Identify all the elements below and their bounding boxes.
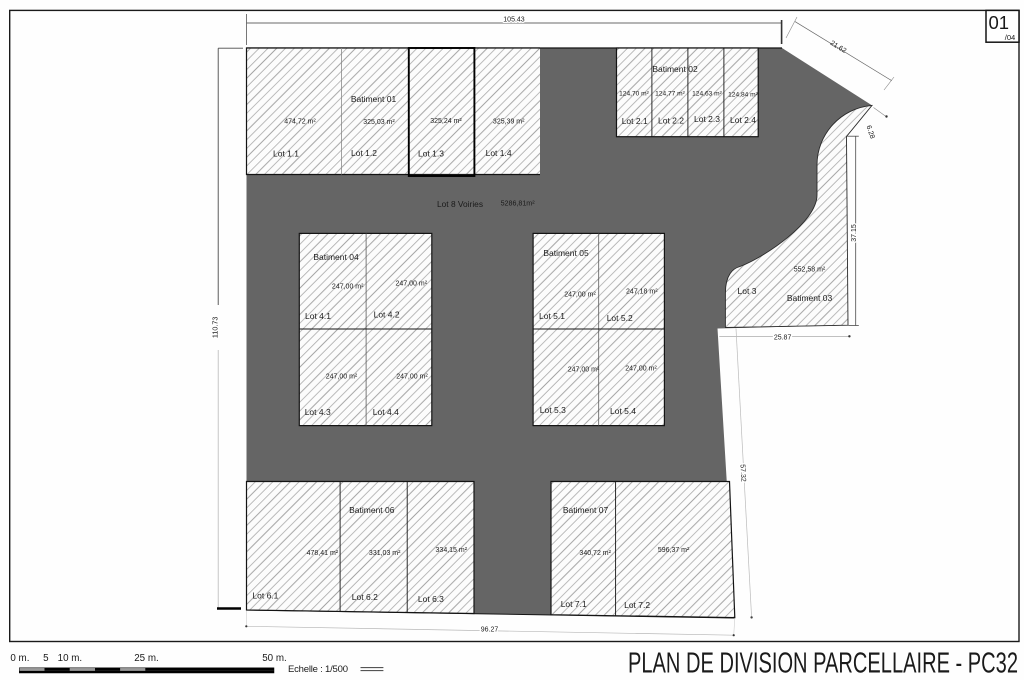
svg-text:25.87: 25.87 — [774, 334, 792, 341]
svg-text:Lot 2.2: Lot 2.2 — [658, 116, 684, 126]
svg-text:Lot 5.2: Lot 5.2 — [607, 313, 633, 323]
svg-text:Lot 4.4: Lot 4.4 — [373, 407, 399, 417]
svg-text:340,72 m²: 340,72 m² — [579, 550, 611, 557]
svg-text:325,24 m²: 325,24 m² — [430, 118, 462, 125]
svg-text:25 m.: 25 m. — [134, 653, 159, 664]
svg-text:552,58 m²: 552,58 m² — [794, 267, 826, 274]
svg-text:5286,81m²: 5286,81m² — [501, 201, 536, 208]
svg-text:Lot 2.1: Lot 2.1 — [622, 116, 648, 126]
svg-text:247,00 m²: 247,00 m² — [564, 292, 596, 299]
svg-text:331,03 m²: 331,03 m² — [369, 550, 401, 557]
svg-text:325,03 m²: 325,03 m² — [363, 119, 395, 126]
svg-text:Lot 5.4: Lot 5.4 — [610, 406, 636, 416]
svg-text:Lot 4.3: Lot 4.3 — [305, 407, 331, 417]
svg-text:474,72 m²: 474,72 m² — [284, 119, 316, 126]
svg-text:PLAN DE DIVISION PARCELLAIRE -: PLAN DE DIVISION PARCELLAIRE - PC32 — [628, 648, 1018, 680]
svg-text:Lot 4.1: Lot 4.1 — [305, 311, 331, 321]
svg-text:110.73: 110.73 — [211, 317, 220, 338]
svg-text:247,00 m²: 247,00 m² — [568, 367, 600, 374]
svg-text:334,15 m²: 334,15 m² — [436, 547, 468, 554]
svg-text:124,77 m²: 124,77 m² — [655, 91, 685, 98]
svg-text:247,00 m²: 247,00 m² — [396, 374, 428, 381]
svg-text:Lot 5.1: Lot 5.1 — [539, 311, 565, 321]
svg-text:Lot 6.3: Lot 6.3 — [418, 594, 444, 604]
svg-text:Lot 1.2: Lot 1.2 — [351, 148, 377, 158]
svg-text:Lot 7.2: Lot 7.2 — [624, 600, 650, 610]
svg-text:247,00 m²: 247,00 m² — [326, 374, 358, 381]
svg-text:Lot 8 Voiries: Lot 8 Voiries — [437, 199, 483, 209]
svg-text:124,63 m²: 124,63 m² — [692, 91, 722, 98]
svg-text:01: 01 — [989, 12, 1010, 33]
svg-text:Lot 5.3: Lot 5.3 — [540, 405, 566, 415]
svg-text:Lot 7.1: Lot 7.1 — [561, 599, 587, 609]
svg-text:37.15: 37.15 — [851, 224, 858, 242]
svg-text:Lot 6.2: Lot 6.2 — [352, 592, 378, 602]
svg-text:478,41 m²: 478,41 m² — [307, 550, 339, 557]
svg-text:124,84 m²: 124,84 m² — [728, 92, 758, 99]
svg-text:Lot 2.3: Lot 2.3 — [694, 114, 720, 124]
svg-text:Lot 1.1: Lot 1.1 — [273, 149, 299, 159]
svg-text:596,37 m²: 596,37 m² — [658, 547, 690, 554]
svg-text:247,00 m²: 247,00 m² — [625, 366, 657, 373]
svg-text:Batiment 01: Batiment 01 — [351, 94, 397, 104]
svg-text:Lot 2.4: Lot 2.4 — [730, 115, 756, 125]
svg-text:Batiment 03: Batiment 03 — [787, 293, 833, 303]
svg-text:Lot 6.1: Lot 6.1 — [252, 591, 278, 601]
svg-text:Lot 1.3: Lot 1.3 — [418, 149, 444, 159]
svg-text:57.32: 57.32 — [739, 464, 747, 482]
svg-text:105.43: 105.43 — [503, 17, 525, 24]
svg-text:Echelle : 1/500: Echelle : 1/500 — [288, 664, 348, 675]
svg-text:247,00 m²: 247,00 m² — [396, 281, 428, 288]
svg-text:Batiment 02: Batiment 02 — [652, 64, 698, 74]
svg-text:/04: /04 — [1005, 33, 1016, 42]
svg-text:10 m.: 10 m. — [58, 653, 83, 664]
svg-text:124,70 m²: 124,70 m² — [619, 91, 649, 98]
svg-text:5: 5 — [43, 653, 49, 664]
svg-text:50 m.: 50 m. — [262, 653, 287, 664]
svg-text:Batiment 07: Batiment 07 — [563, 505, 609, 515]
svg-text:0 m.: 0 m. — [10, 653, 29, 664]
svg-text:96.27: 96.27 — [481, 627, 499, 634]
svg-text:Batiment 06: Batiment 06 — [349, 505, 395, 515]
svg-text:247,18 m²: 247,18 m² — [626, 289, 658, 296]
svg-text:247,00 m²: 247,00 m² — [332, 284, 364, 291]
svg-text:325,39 m²: 325,39 m² — [493, 119, 525, 126]
svg-text:Batiment 04: Batiment 04 — [313, 252, 359, 262]
svg-text:Lot 1.4: Lot 1.4 — [486, 148, 512, 158]
svg-text:Lot 3: Lot 3 — [738, 286, 757, 296]
svg-text:Lot 4.2: Lot 4.2 — [374, 310, 400, 320]
svg-text:Batiment 05: Batiment 05 — [543, 248, 589, 258]
